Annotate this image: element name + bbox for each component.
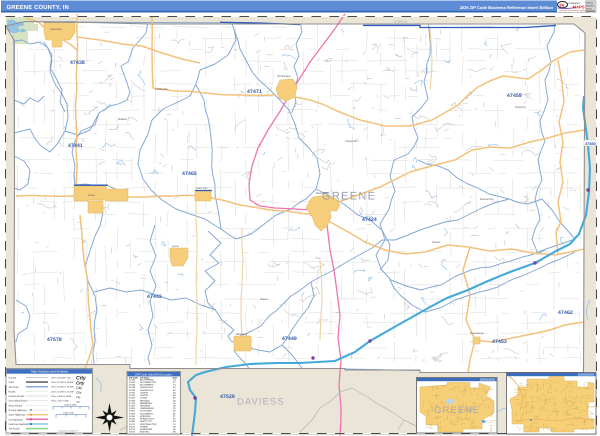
svg-text:47529: 47529 bbox=[129, 431, 136, 434]
svg-text:City: City bbox=[76, 391, 82, 395]
svg-text:47453: 47453 bbox=[129, 407, 136, 410]
svg-text:SANDBORN: SANDBORN bbox=[140, 428, 153, 431]
svg-text:SCOTLAND: SCOTLAND bbox=[140, 410, 152, 413]
svg-text:47465: 47465 bbox=[129, 420, 136, 423]
svg-text:47445: 47445 bbox=[129, 399, 136, 402]
svg-text:2025 ZIP Code Business Referen: 2025 ZIP Code Business Reference Insert … bbox=[460, 5, 554, 10]
svg-text:47443: 47443 bbox=[129, 397, 136, 400]
svg-text:CRANE: CRANE bbox=[140, 426, 148, 429]
svg-text:Scale of Miles: Scale of Miles bbox=[64, 403, 76, 406]
svg-text:Calvertville: Calvertville bbox=[345, 140, 358, 143]
svg-text:47438: 47438 bbox=[70, 60, 85, 66]
svg-text:Cities 10,000 to 24,999: Cities 10,000 to 24,999 bbox=[51, 390, 74, 393]
svg-text:47471: 47471 bbox=[247, 89, 262, 95]
svg-text:WORTHINGTON: WORTHINGTON bbox=[140, 423, 157, 426]
svg-text:47529: 47529 bbox=[220, 394, 235, 400]
svg-text:47452: 47452 bbox=[129, 405, 136, 408]
svg-text:Bus.Ref: Bus.Ref bbox=[586, 5, 594, 8]
svg-text:47438: 47438 bbox=[129, 386, 136, 389]
svg-text:Map Features and Symbols: Map Features and Symbols bbox=[31, 370, 68, 374]
svg-text:www.marketmaps.com 1-800-MAPS: www.marketmaps.com 1-800-MAPS-123 bbox=[558, 11, 589, 14]
svg-text:BLOOMFIELD: BLOOMFIELD bbox=[140, 378, 154, 381]
svg-text:47471: 47471 bbox=[129, 423, 136, 426]
svg-text:NAICS: NAICS bbox=[586, 2, 593, 5]
svg-text:ZIP Code: ZIP Code bbox=[9, 386, 20, 389]
svg-text:Cities 5,000 to 9,999: Cities 5,000 to 9,999 bbox=[51, 395, 72, 398]
svg-text:47457: 47457 bbox=[129, 410, 136, 413]
svg-text:Toll Roads: Toll Roads bbox=[9, 428, 21, 431]
svg-text:OWEN: OWEN bbox=[394, 20, 407, 24]
svg-text:LYONS: LYONS bbox=[140, 397, 148, 400]
svg-text:47443: 47443 bbox=[147, 294, 162, 300]
svg-text:47429: 47429 bbox=[129, 381, 136, 384]
svg-text:GREENE COUNTY, IN: GREENE COUNTY, IN bbox=[7, 4, 69, 11]
svg-text:BLOOMFIELD: BLOOMFIELD bbox=[140, 384, 154, 387]
svg-text:ZIP Code Index/Grid Locator: ZIP Code Index/Grid Locator bbox=[135, 372, 172, 376]
svg-text:SOLSBERRY: SOLSBERRY bbox=[140, 412, 154, 415]
svg-text:47449: 47449 bbox=[282, 336, 297, 342]
svg-text:47578: 47578 bbox=[47, 337, 62, 343]
svg-text:47449: 47449 bbox=[129, 402, 136, 405]
svg-text:SPRINGVILLE: SPRINGVILLE bbox=[140, 418, 155, 421]
svg-text:Cities 50,000 to 99,999: Cities 50,000 to 99,999 bbox=[51, 381, 74, 384]
svg-text:JASONVILLE: JASONVILLE bbox=[140, 386, 154, 389]
svg-text:Insert: Insert bbox=[586, 8, 592, 11]
svg-text:Hobbieville: Hobbieville bbox=[155, 88, 168, 91]
svg-text:LINTON: LINTON bbox=[140, 394, 148, 397]
svg-text:47441: 47441 bbox=[68, 143, 83, 149]
svg-text:OWENSBURG: OWENSBURG bbox=[140, 407, 155, 410]
svg-text:County: County bbox=[9, 377, 17, 380]
svg-text:Marco: Marco bbox=[260, 298, 268, 301]
svg-text:47460: 47460 bbox=[129, 415, 136, 418]
svg-text:Bloomfield: Bloomfield bbox=[316, 192, 329, 195]
svg-text:47441: 47441 bbox=[129, 394, 136, 397]
svg-text:MAPS: MAPS bbox=[573, 4, 585, 9]
svg-text:Cities under 5,000: Cities under 5,000 bbox=[51, 400, 70, 403]
svg-text:Worthington: Worthington bbox=[277, 75, 291, 78]
svg-text:NEWBERRY: NEWBERRY bbox=[140, 402, 153, 405]
svg-text:Scale of KM: Scale of KM bbox=[63, 411, 74, 414]
svg-text:MIDLAND: MIDLAND bbox=[140, 399, 150, 402]
svg-text:47453: 47453 bbox=[492, 339, 507, 345]
svg-text:47433: 47433 bbox=[129, 384, 136, 387]
svg-text:Primary Roads: Primary Roads bbox=[9, 395, 26, 398]
svg-text:47424: 47424 bbox=[129, 378, 136, 381]
svg-text:Roads: Roads bbox=[9, 390, 17, 393]
svg-text:ORLEANS: ORLEANS bbox=[140, 405, 151, 408]
svg-text:Cities 100,000+ Pop.: Cities 100,000+ Pop. bbox=[51, 377, 72, 380]
svg-text:JASONVILLE: JASONVILLE bbox=[140, 389, 154, 392]
svg-text:Secondary Roads: Secondary Roads bbox=[9, 400, 29, 403]
svg-text:Lyons: Lyons bbox=[172, 245, 180, 248]
svg-text:Switz City: Switz City bbox=[196, 187, 208, 190]
svg-text:Koleen: Koleen bbox=[432, 241, 441, 244]
svg-text:US Highways: US Highways bbox=[9, 418, 24, 421]
svg-text:SWITZ CITY: SWITZ CITY bbox=[140, 420, 153, 423]
svg-text:Solsberry: Solsberry bbox=[515, 106, 527, 109]
svg-text:47460: 47460 bbox=[585, 142, 596, 146]
svg-text:City: City bbox=[76, 380, 85, 385]
svg-text:Linton: Linton bbox=[88, 194, 96, 197]
svg-text:City: City bbox=[76, 396, 81, 399]
svg-text:47462: 47462 bbox=[129, 418, 136, 421]
svg-text:ELNORA: ELNORA bbox=[140, 431, 149, 434]
svg-text:Jasonville: Jasonville bbox=[50, 28, 62, 31]
svg-text:County Highways: County Highways bbox=[9, 409, 28, 412]
svg-text:47424: 47424 bbox=[362, 217, 377, 223]
svg-text:47441: 47441 bbox=[129, 391, 136, 394]
svg-text:47438: 47438 bbox=[129, 389, 136, 392]
svg-text:Owensburg: Owensburg bbox=[470, 332, 484, 335]
svg-text:State: State bbox=[9, 381, 15, 384]
svg-text:GREENE: GREENE bbox=[322, 191, 376, 203]
svg-text:47462: 47462 bbox=[558, 310, 573, 316]
svg-text:47459: 47459 bbox=[129, 412, 136, 415]
svg-text:Midland: Midland bbox=[118, 118, 128, 121]
svg-text:LINTON: LINTON bbox=[140, 391, 148, 394]
svg-text:City: City bbox=[76, 386, 82, 390]
svg-text:Minor Roads: Minor Roads bbox=[9, 404, 23, 407]
svg-text:State Highways: State Highways bbox=[9, 414, 26, 417]
svg-text:66: 66 bbox=[560, 2, 565, 7]
svg-text:Cities 25,000 to 49,999: Cities 25,000 to 49,999 bbox=[51, 386, 74, 389]
svg-text:BLOOMINGTON: BLOOMINGTON bbox=[140, 381, 156, 384]
svg-text:47578: 47578 bbox=[129, 428, 136, 431]
svg-text:DAVIESS: DAVIESS bbox=[237, 397, 284, 408]
svg-text:SPENCER: SPENCER bbox=[140, 415, 151, 418]
svg-text:Mineral City: Mineral City bbox=[480, 198, 494, 201]
svg-text:47459: 47459 bbox=[507, 93, 522, 99]
svg-text:Copyright MarketMAPS: Copyright MarketMAPS bbox=[58, 430, 78, 433]
svg-text:Newberry: Newberry bbox=[236, 333, 248, 336]
svg-text:GREENE: GREENE bbox=[434, 405, 480, 416]
svg-text:47465: 47465 bbox=[182, 171, 197, 177]
svg-text:47522: 47522 bbox=[129, 426, 136, 429]
